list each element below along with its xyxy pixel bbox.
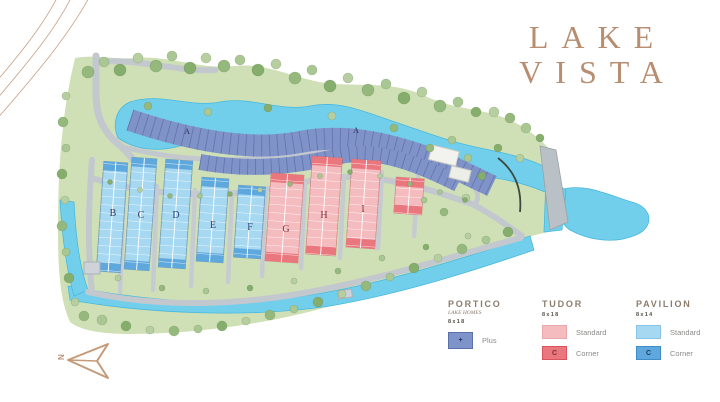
block-label-i: I <box>361 204 364 215</box>
tudor-corner-swatch: C <box>542 346 567 360</box>
tudor-standard-label: Standard <box>576 328 606 337</box>
north-label: N <box>57 354 66 360</box>
portico-plus-swatch: + <box>448 332 473 349</box>
brand-line1: LAKE <box>505 20 690 55</box>
block-label-b: B <box>110 208 117 219</box>
legend-pavilion-title: PAVILION <box>636 299 702 309</box>
block-label-f: F <box>247 222 253 233</box>
legend-tudor-size: 8x18 <box>542 312 608 318</box>
block-label-g: G <box>282 224 289 235</box>
block-label-a: A <box>353 126 359 135</box>
legend-tudor-title: TUDOR <box>542 299 608 309</box>
block-label-e: E <box>210 220 216 231</box>
pavilion-corner-label: Corner <box>670 349 693 358</box>
legend-portico-size: 8x18 <box>448 319 514 325</box>
legend-pavilion-size: 8x14 <box>636 312 702 318</box>
legend-portico: PORTICO LAKE HOMES 8x18 + Plus <box>448 299 514 360</box>
pavilion-standard-swatch <box>636 325 661 339</box>
block-label-h: H <box>320 210 327 221</box>
pavilion-corner-swatch: C <box>636 346 661 360</box>
block-label-c: C <box>138 210 145 221</box>
legend-tudor: TUDOR 8x18 Standard C Corner <box>542 299 608 360</box>
legend-pavilion-standard-row: Standard <box>636 325 702 339</box>
page: A A B C D E F G H I N LAKE VISTA PORTICO… <box>0 0 720 402</box>
legend: PORTICO LAKE HOMES 8x18 + Plus TUDOR 8x1… <box>448 299 702 360</box>
tudor-standard-swatch <box>542 325 567 339</box>
legend-pavilion: PAVILION 8x14 Standard C Corner <box>636 299 702 360</box>
legend-portico-title: PORTICO <box>448 299 514 309</box>
brand-wordmark: LAKE VISTA <box>505 20 690 89</box>
legend-pavilion-corner-row: C Corner <box>636 346 702 360</box>
tudor-corner-label: Corner <box>576 349 599 358</box>
north-compass: N <box>57 344 108 378</box>
block-label-a: A <box>184 127 190 136</box>
brand-line2: VISTA <box>505 55 690 90</box>
legend-tudor-corner-row: C Corner <box>542 346 608 360</box>
block-label-d: D <box>172 210 179 221</box>
portico-plus-label: Plus <box>482 336 497 345</box>
pavilion-standard-label: Standard <box>670 328 700 337</box>
legend-portico-plus-row: + Plus <box>448 332 514 349</box>
legend-portico-subtitle: LAKE HOMES <box>448 310 514 316</box>
outlet-lake <box>557 188 649 241</box>
legend-tudor-standard-row: Standard <box>542 325 608 339</box>
